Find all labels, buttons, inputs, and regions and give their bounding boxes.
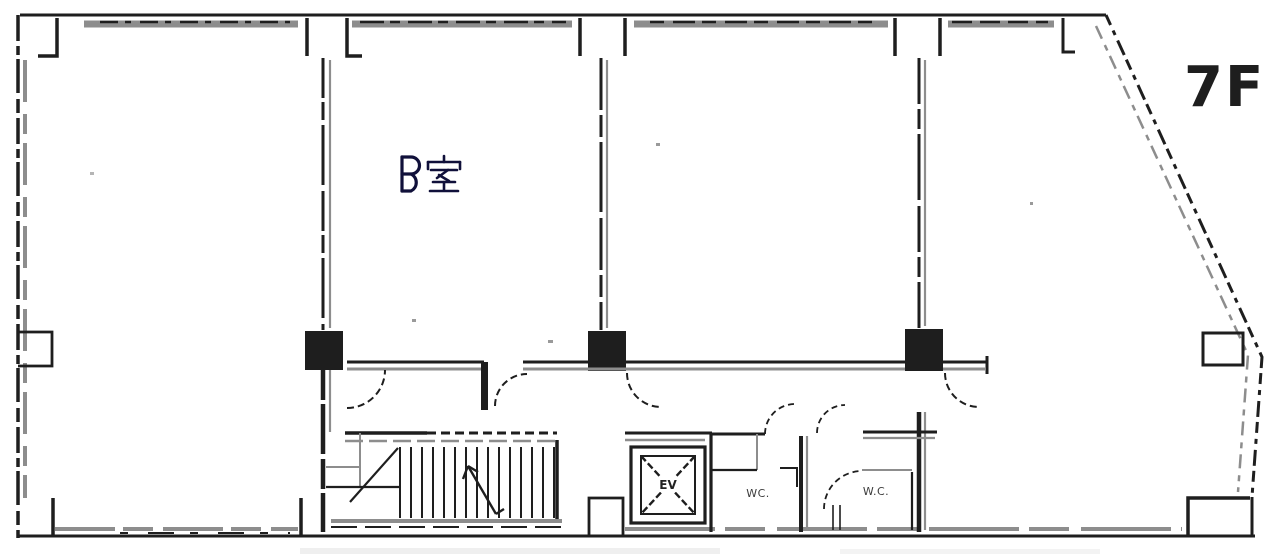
room-divider-3 — [905, 58, 943, 532]
floor-plan-svg: EV WC. W.C. B室 — [0, 0, 1280, 556]
wc-right-label: W.C. — [863, 485, 889, 498]
left-wall — [18, 15, 52, 538]
staircase — [326, 433, 562, 527]
corridor-wall — [347, 356, 987, 410]
pilaster-top-left — [38, 18, 57, 56]
column-c — [905, 329, 943, 371]
floor-label: 7F — [1184, 55, 1265, 120]
room-b-label: B室 — [398, 154, 462, 198]
room-divider-2 — [588, 58, 626, 371]
floor-plan-page: EV WC. W.C. B室 — [0, 0, 1280, 556]
door-jamb-stub — [481, 362, 488, 410]
door-arc-room-b-left — [347, 370, 385, 408]
wc-left-room: WC. — [711, 433, 797, 532]
elevator-shaft: EV — [625, 433, 712, 523]
wc-divider-wall — [801, 436, 807, 532]
bottom-right-step — [1188, 498, 1250, 536]
pilaster-right-wall — [1203, 333, 1243, 365]
stair-arrow — [463, 466, 504, 514]
pilaster-stair-ev — [589, 498, 623, 536]
column-a — [305, 331, 343, 370]
wc-left-label: WC. — [746, 487, 770, 500]
pilaster-top-right — [1063, 18, 1075, 52]
door-arc-wc-right — [817, 405, 845, 433]
top-wall — [20, 15, 1106, 56]
door-arc-room-c — [627, 373, 661, 407]
door-arc-wc-right-inner — [824, 471, 862, 509]
room-divider-1 — [305, 58, 343, 532]
stair-break-line — [350, 448, 398, 502]
bottom-wall — [18, 498, 1255, 536]
door-arc-room-b — [495, 374, 527, 406]
wc-right-room: W.C. — [833, 432, 937, 530]
column-b — [588, 331, 626, 371]
door-arc-room-d — [945, 373, 979, 407]
door-arc-wc-left — [765, 404, 795, 434]
wc-left-corner-detail — [780, 468, 797, 487]
elevator-label: EV — [659, 478, 677, 492]
